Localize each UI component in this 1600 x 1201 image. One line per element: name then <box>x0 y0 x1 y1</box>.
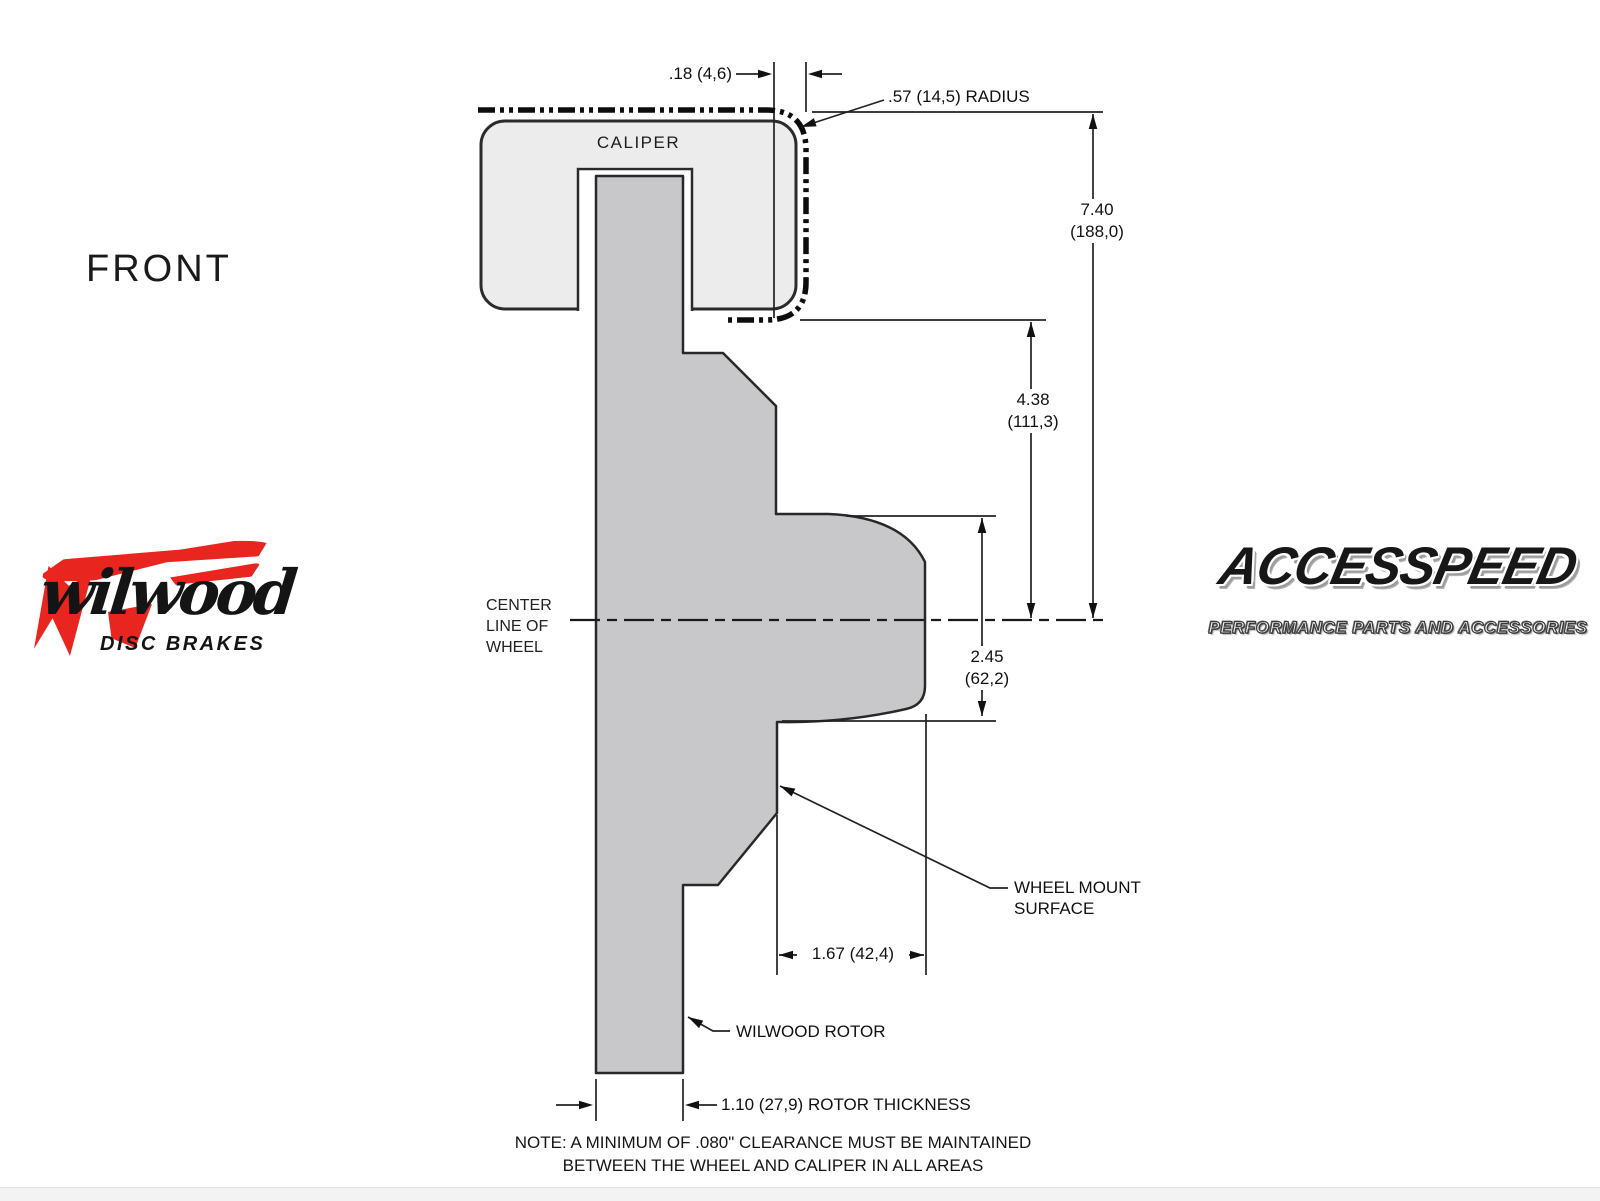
wheel-mount-surface-label: WHEEL MOUNT SURFACE <box>1014 877 1141 919</box>
dim-caliper-to-center-label: 4.38 (111,3) <box>976 389 1090 433</box>
accesspeed-logo: ACCESSPEED PERFORMANCE PARTS AND ACCESSO… <box>1198 536 1598 656</box>
dim-radius-label: .57 (14,5) RADIUS <box>888 87 1030 107</box>
wilwood-wordmark: wilwood <box>10 556 324 629</box>
wilwood-rotor-label: WILWOOD ROTOR <box>736 1021 886 1042</box>
rotor-hat-shape <box>596 176 925 1073</box>
front-view-label: FRONT <box>86 248 232 291</box>
dim-hat-depth-label: 2.45 (62,2) <box>930 646 1044 690</box>
bottom-edge-strip <box>0 1187 1600 1201</box>
dim-rotor-thickness-label: 1.10 (27,9) ROTOR THICKNESS <box>721 1094 971 1115</box>
accesspeed-wordmark: ACCESSPEED <box>1192 536 1600 597</box>
dim-gap-label: .18 (4,6) <box>616 64 732 84</box>
centerline-label: CENTER LINE OF WHEEL <box>486 595 552 658</box>
dim-overall-height-label: 7.40 (188,0) <box>1040 199 1154 243</box>
caliper-label: CALIPER <box>481 133 796 153</box>
clearance-note: NOTE: A MINIMUM OF .080" CLEARANCE MUST … <box>420 1131 1126 1177</box>
accesspeed-tagline: PERFORMANCE PARTS AND ACCESSORIES <box>1198 618 1598 638</box>
wilwood-logo: wilwood DISC BRAKES <box>12 538 322 658</box>
dim-mount-offset-label: 1.67 (42,4) <box>797 944 909 964</box>
wilwood-tagline: DISC BRAKES <box>100 633 265 656</box>
